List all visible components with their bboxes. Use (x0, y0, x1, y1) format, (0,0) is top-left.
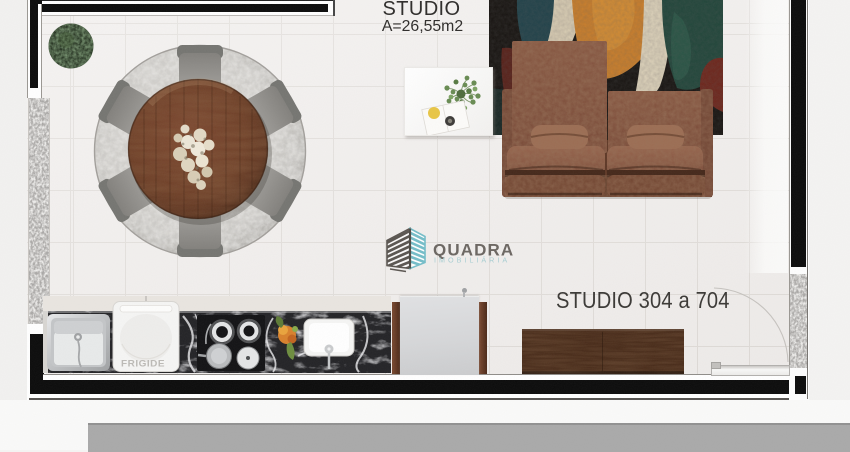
svg-text:FRIGIDE: FRIGIDE (121, 359, 165, 370)
svg-text:IMOBILIÁRIA: IMOBILIÁRIA (434, 256, 510, 265)
